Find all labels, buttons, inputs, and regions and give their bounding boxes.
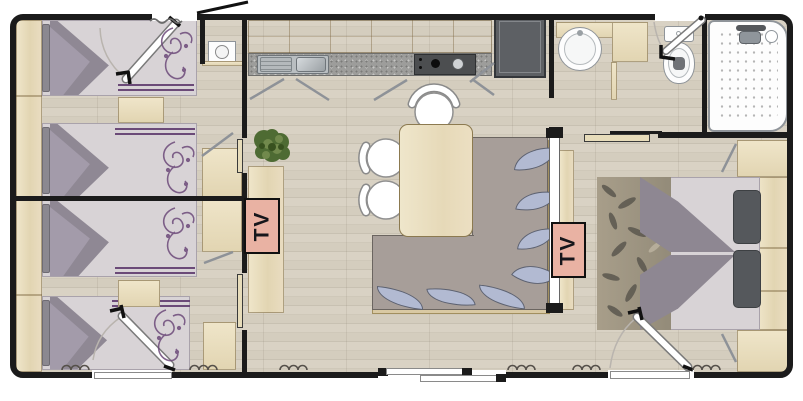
patio-door-stub	[496, 374, 506, 382]
door-leaf	[610, 371, 690, 379]
door-leaf	[237, 274, 243, 328]
floor-plan: TV TV	[0, 0, 803, 401]
sliding-door-icon	[584, 134, 650, 142]
wc-door-opening	[655, 12, 705, 21]
bedroom-divider-wall	[14, 196, 246, 201]
tv-label: TV	[250, 211, 274, 242]
entry-door-opening	[152, 12, 197, 21]
sliding-door-icon	[386, 368, 466, 375]
door-leaf	[94, 372, 172, 379]
bedroom-wall	[242, 330, 247, 372]
shower-wall	[702, 18, 707, 138]
master-top-wall	[658, 132, 792, 138]
sliding-door-icon	[420, 375, 502, 382]
wall-cap	[546, 303, 563, 313]
bathroom-wall	[549, 18, 554, 98]
door-swing-icon	[197, 2, 248, 13]
wall-cap	[546, 128, 563, 138]
closet-wall	[200, 18, 205, 64]
tv-icon: TV	[551, 222, 586, 278]
bedroom-wall	[242, 18, 247, 138]
door-leaf	[237, 139, 243, 173]
tv-label: TV	[557, 235, 581, 266]
tv-icon: TV	[244, 198, 280, 254]
